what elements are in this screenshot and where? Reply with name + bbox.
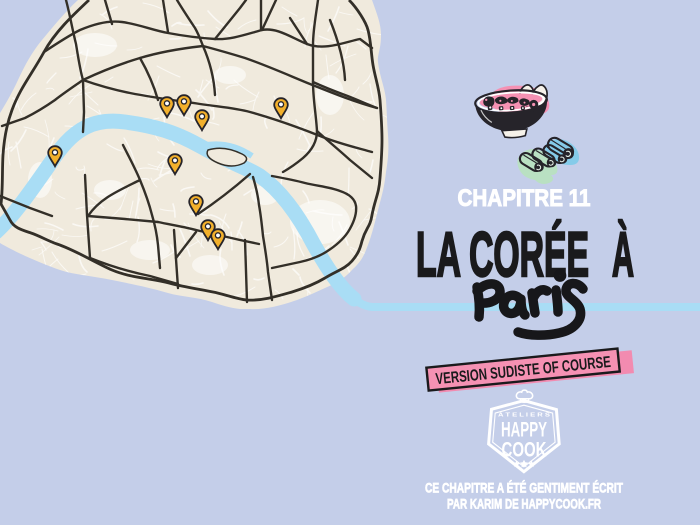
svg-text:CE CHAPITRE A ÉTÉ GENTIMENT ÉC: CE CHAPITRE A ÉTÉ GENTIMENT ÉCRIT (425, 480, 623, 496)
svg-text:CHAPITRE 11: CHAPITRE 11 (458, 185, 591, 212)
svg-text:COOK: COOK (502, 438, 547, 462)
svg-text:PAR KARIM DE HAPPYCOOK.FR: PAR KARIM DE HAPPYCOOK.FR (447, 496, 601, 512)
svg-text:À: À (612, 220, 634, 290)
